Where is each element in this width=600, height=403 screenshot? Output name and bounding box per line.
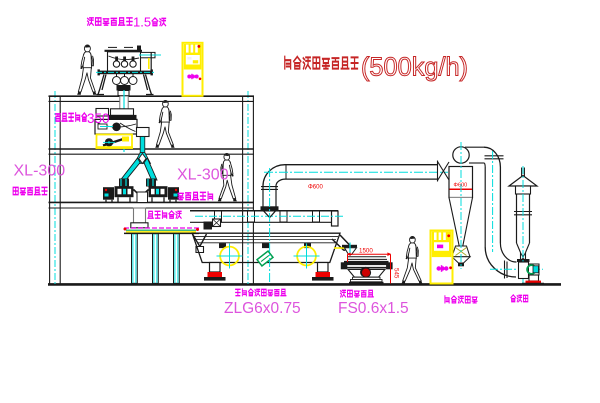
svg-text:XL-300: XL-300 (14, 163, 66, 180)
svg-text:(500kg/h): (500kg/h) (361, 52, 468, 82)
svg-text:XL-300: XL-300 (177, 167, 229, 184)
svg-text:1.5: 1.5 (133, 15, 151, 30)
svg-text:350: 350 (87, 111, 110, 126)
svg-text:ZLG6x0.75: ZLG6x0.75 (224, 300, 301, 317)
svg-text:Φ600: Φ600 (308, 185, 323, 191)
svg-text:1500: 1500 (359, 248, 373, 255)
svg-text:Φ600: Φ600 (454, 183, 468, 189)
svg-text:FS0.6x1.5: FS0.6x1.5 (338, 300, 409, 317)
svg-text:545: 545 (393, 268, 400, 279)
